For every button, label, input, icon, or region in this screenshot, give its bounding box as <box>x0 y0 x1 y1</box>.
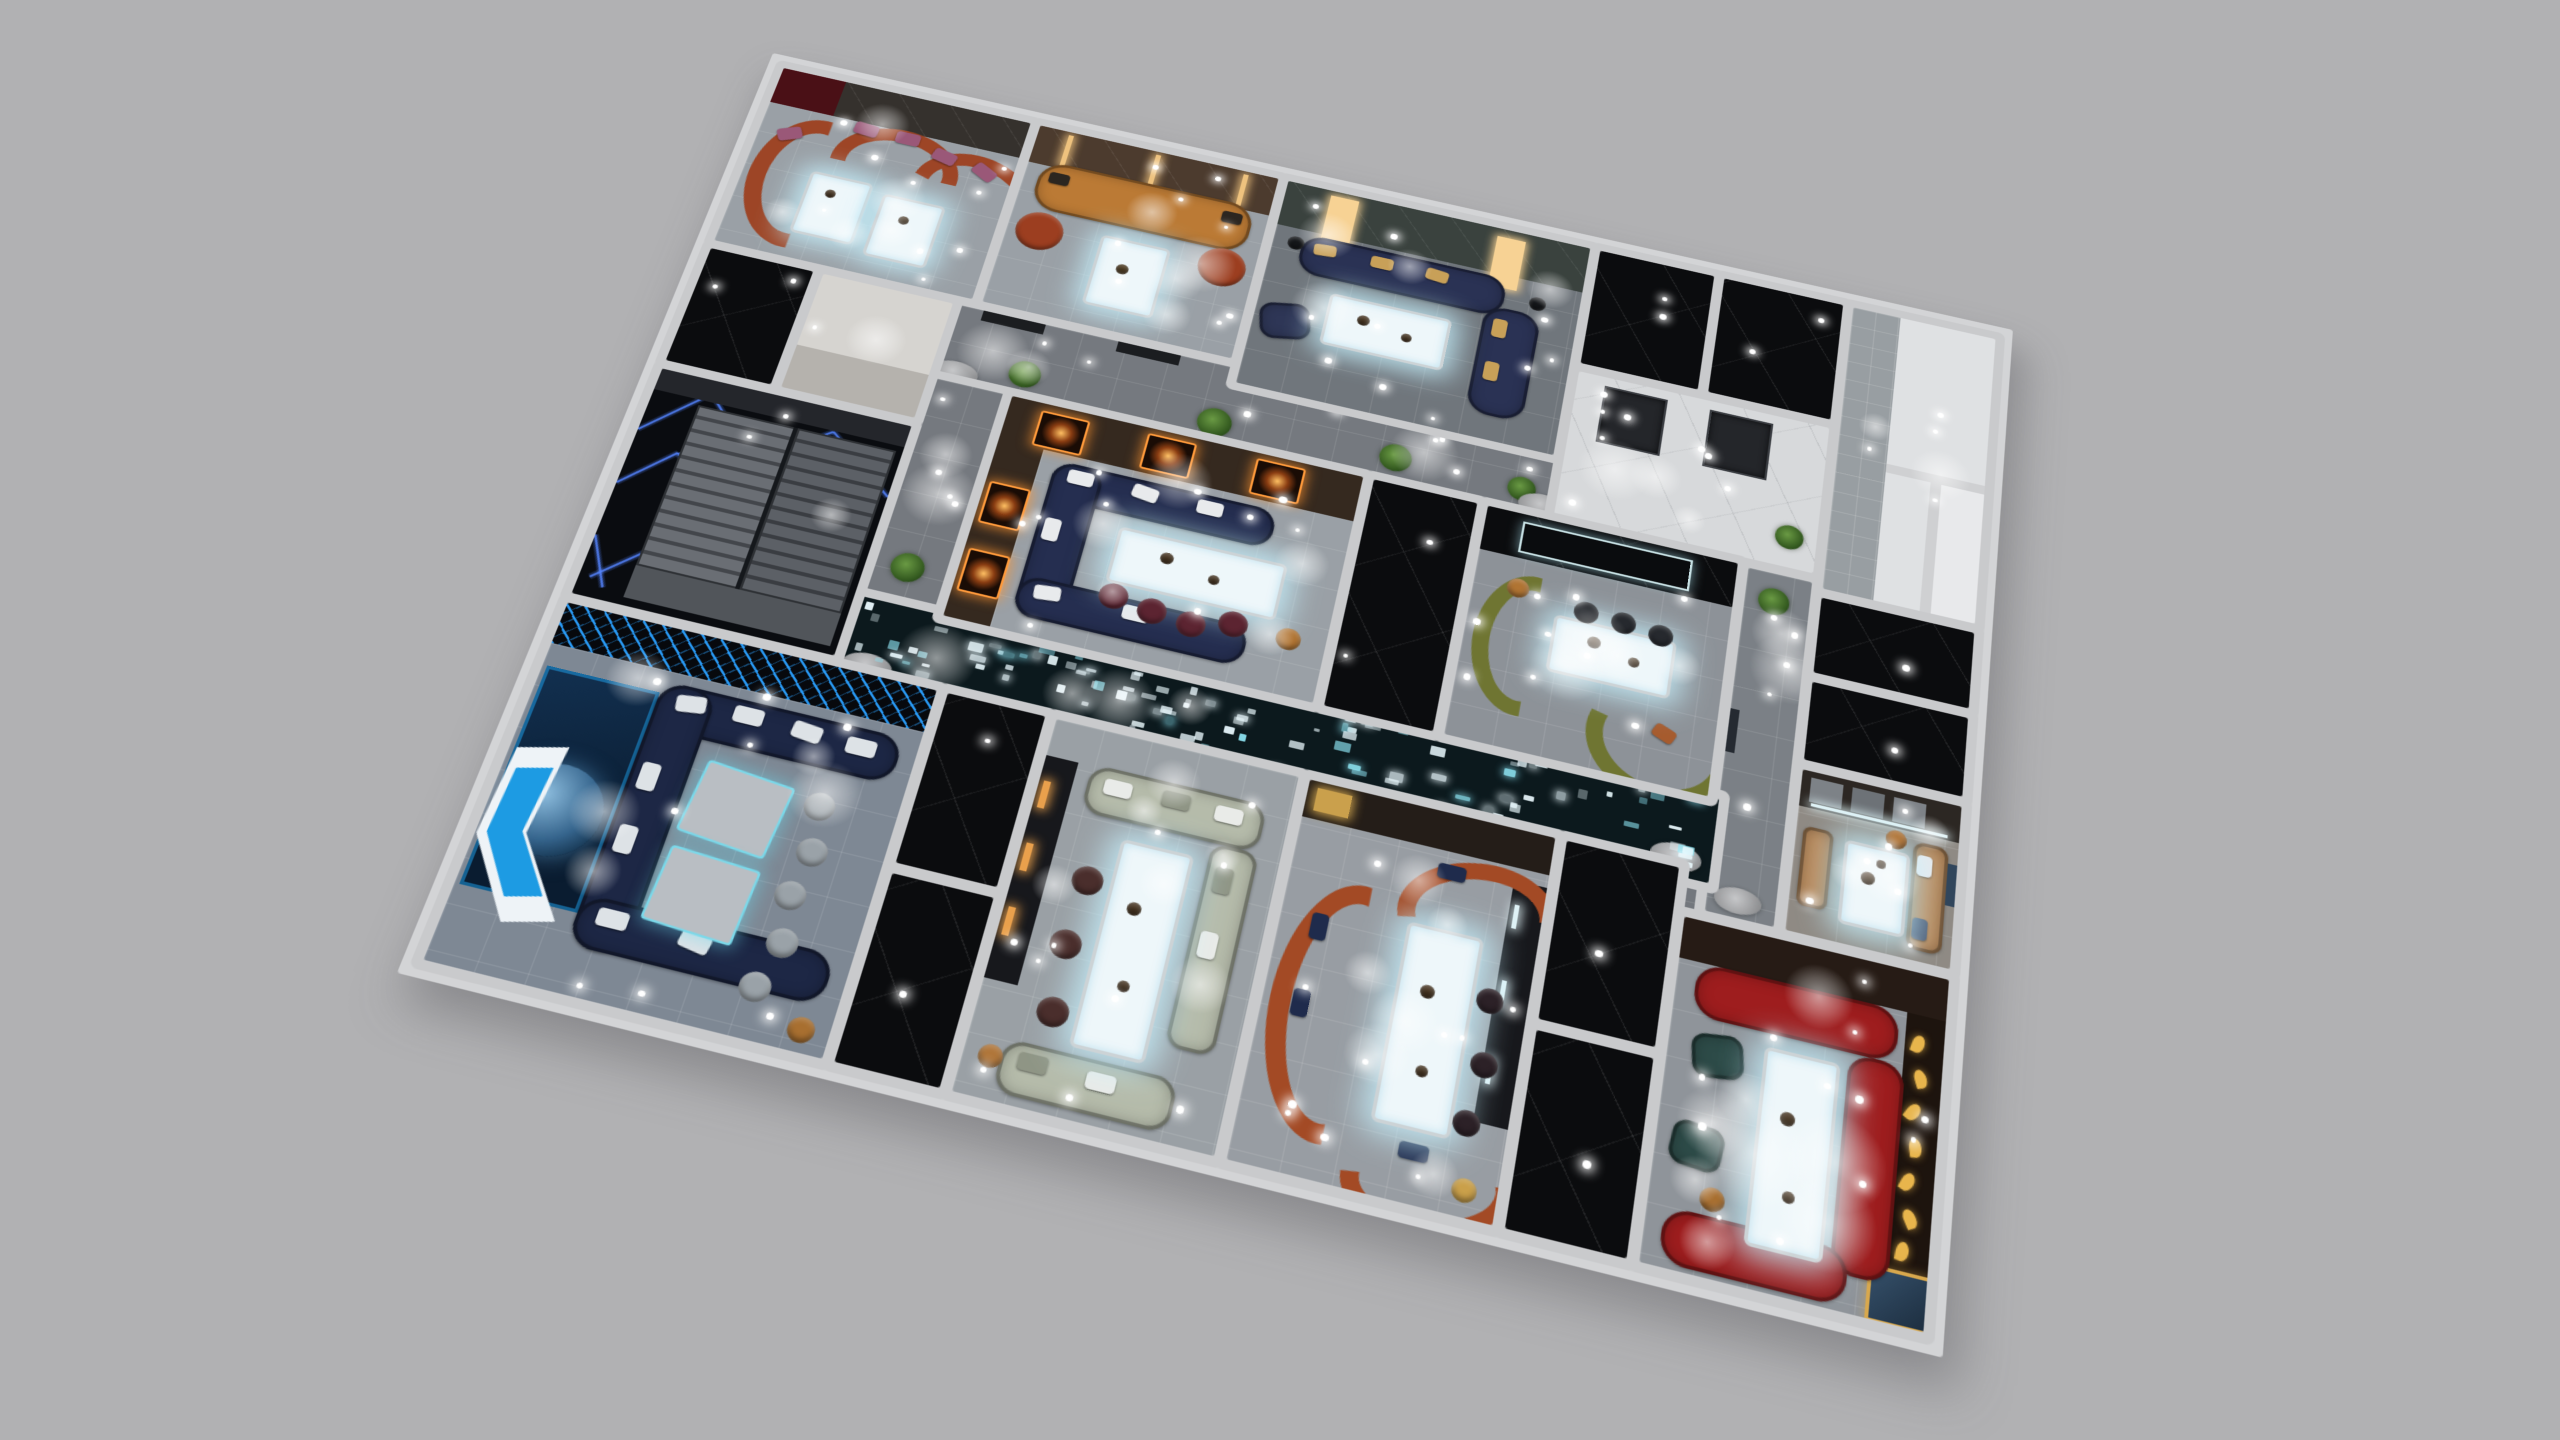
pillow <box>674 694 708 714</box>
ceiling-light <box>1426 539 1433 545</box>
led-floor-pixel <box>1650 791 1665 803</box>
ceiling-light <box>1541 317 1548 323</box>
ceiling-light <box>1452 468 1460 475</box>
led-floor-pixel <box>1523 795 1534 802</box>
led-floor-pixel <box>1223 725 1236 735</box>
room-restroom <box>1823 307 1996 623</box>
ceiling-light <box>1379 384 1388 392</box>
wall-panel <box>1931 485 1985 624</box>
stool <box>1033 994 1072 1031</box>
ceiling-light <box>671 807 679 814</box>
led-floor-pixel <box>1623 820 1639 829</box>
led-floor-pixel <box>1313 728 1320 733</box>
ceiling-light <box>1743 803 1752 812</box>
ceiling-light <box>921 277 926 281</box>
led-floor-pixel <box>1004 664 1014 671</box>
ceiling-light <box>1295 528 1301 533</box>
ceiling-light <box>1894 888 1901 895</box>
ceiling-light <box>576 982 584 989</box>
led-floor-pixel <box>854 642 864 651</box>
led-floor-pixel <box>1639 783 1647 793</box>
ceiling-light <box>1530 674 1536 680</box>
ceiling-light <box>1549 358 1554 363</box>
ceiling-light <box>1937 412 1944 419</box>
ceiling-light <box>1662 296 1668 301</box>
ceiling-light <box>1216 320 1223 326</box>
led-floor-pixel <box>1556 791 1566 801</box>
ceiling-light <box>1324 357 1332 364</box>
ceiling-light <box>1194 488 1202 495</box>
ceiling-light <box>1902 664 1911 673</box>
ceiling-light <box>762 693 772 701</box>
ceiling-light <box>1334 408 1342 415</box>
ceiling-light <box>712 284 719 289</box>
ceiling-light <box>1086 360 1091 364</box>
ceiling-light <box>1818 317 1825 323</box>
ceiling-light <box>790 278 797 284</box>
square-table <box>675 759 796 860</box>
ceiling-light <box>1862 979 1867 985</box>
led-floor-pixel <box>1248 756 1263 765</box>
led-floor-pixel <box>1194 731 1204 740</box>
ceiling-light <box>1572 593 1580 601</box>
floor-plan-stage <box>0 0 2560 1440</box>
led-floor-pixel <box>870 613 880 622</box>
ceiling-light <box>1595 949 1604 958</box>
ceiling-light <box>1599 435 1605 440</box>
ceiling-light <box>1724 485 1731 492</box>
plant <box>1194 405 1235 440</box>
led-floor-pixel <box>1200 743 1210 751</box>
led-floor-pixel <box>1289 740 1305 751</box>
ceiling-light <box>1631 722 1639 730</box>
barrel-chair <box>1010 208 1068 255</box>
led-floor-pixel <box>1247 708 1256 715</box>
ceiling-light <box>1430 416 1436 421</box>
led-floor-pixel <box>1345 715 1357 723</box>
led-floor-pixel <box>1398 728 1410 736</box>
ceiling-light <box>1749 349 1756 355</box>
ceiling-light <box>940 397 946 402</box>
led-floor-pixel <box>1606 791 1613 798</box>
wooden-stool <box>784 1014 819 1046</box>
led-floor-pixel <box>1351 768 1367 777</box>
ceiling-light <box>1152 165 1159 170</box>
sofa <box>1795 825 1834 911</box>
column-cap <box>1713 883 1763 920</box>
led-floor-pixel <box>1483 805 1495 816</box>
pillow <box>1911 917 1928 942</box>
ceiling-light <box>1226 313 1234 319</box>
ceiling-light <box>1903 808 1909 814</box>
ceiling-light <box>984 738 991 744</box>
ceiling-light <box>1175 1105 1184 1114</box>
ceiling-light <box>637 989 646 997</box>
led-floor-pixel <box>1227 752 1242 759</box>
led-floor-pixel <box>1047 654 1059 665</box>
ceiling-light <box>1582 1159 1592 1169</box>
led-floor-pixel <box>1455 794 1471 801</box>
wall-panel <box>770 68 846 116</box>
led-floor-pixel <box>1156 686 1170 694</box>
led-floor-pixel <box>1688 797 1703 805</box>
led-floor-pixel <box>1334 741 1351 753</box>
led-floor-pixel <box>1431 772 1447 782</box>
plant <box>1774 523 1805 553</box>
ceiling-light <box>1659 313 1667 320</box>
led-floor-pixel <box>999 650 1015 658</box>
ceiling-light <box>839 120 848 127</box>
ceiling-light <box>766 1012 775 1020</box>
led-floor-pixel <box>989 642 1002 649</box>
ceiling-light <box>1891 746 1899 754</box>
room-red-grand-ktv <box>1639 917 1949 1333</box>
ceiling-light <box>1463 673 1471 681</box>
ceiling-light <box>1932 429 1937 434</box>
plant <box>887 550 929 586</box>
led-floor-pixel <box>1002 673 1010 681</box>
ceiling-light <box>956 248 963 254</box>
ceiling-light <box>1035 958 1041 964</box>
floor-plan <box>397 53 2013 1358</box>
ceiling-light <box>1026 622 1034 629</box>
led-floor-pixel <box>1238 733 1247 742</box>
stool <box>792 835 831 870</box>
ceiling-light <box>1473 618 1481 626</box>
led-floor-pixel <box>1614 843 1627 850</box>
led-floor-pixel <box>1492 812 1503 819</box>
led-floor-pixel <box>1430 745 1446 757</box>
elevator-shaft <box>1702 410 1773 481</box>
led-floor-pixel <box>1499 794 1514 803</box>
ceiling-light <box>1568 498 1577 506</box>
stool <box>770 878 810 914</box>
led-floor-pixel <box>1360 783 1374 791</box>
led-floor-pixel <box>1529 762 1538 769</box>
ceiling-light <box>1243 410 1252 417</box>
led-floor-pixel <box>1578 789 1588 800</box>
led-floor-pixel <box>1639 797 1648 804</box>
ceiling-light <box>1527 466 1534 472</box>
led-floor-pixel <box>864 601 875 611</box>
led-floor-pixel <box>1669 824 1682 831</box>
ceiling-light <box>1041 341 1047 346</box>
led-floor-pixel <box>1075 656 1083 661</box>
ceiling-light <box>899 990 908 998</box>
light-pool <box>1670 502 1709 538</box>
ceiling-light <box>1698 1073 1706 1081</box>
ceiling-light <box>812 325 818 330</box>
led-floor-pixel <box>1019 653 1028 658</box>
ceiling-light <box>1343 653 1349 658</box>
led-floor-pixel <box>1503 768 1516 778</box>
ceiling-light <box>1783 662 1790 669</box>
ceiling-light <box>1374 860 1382 868</box>
